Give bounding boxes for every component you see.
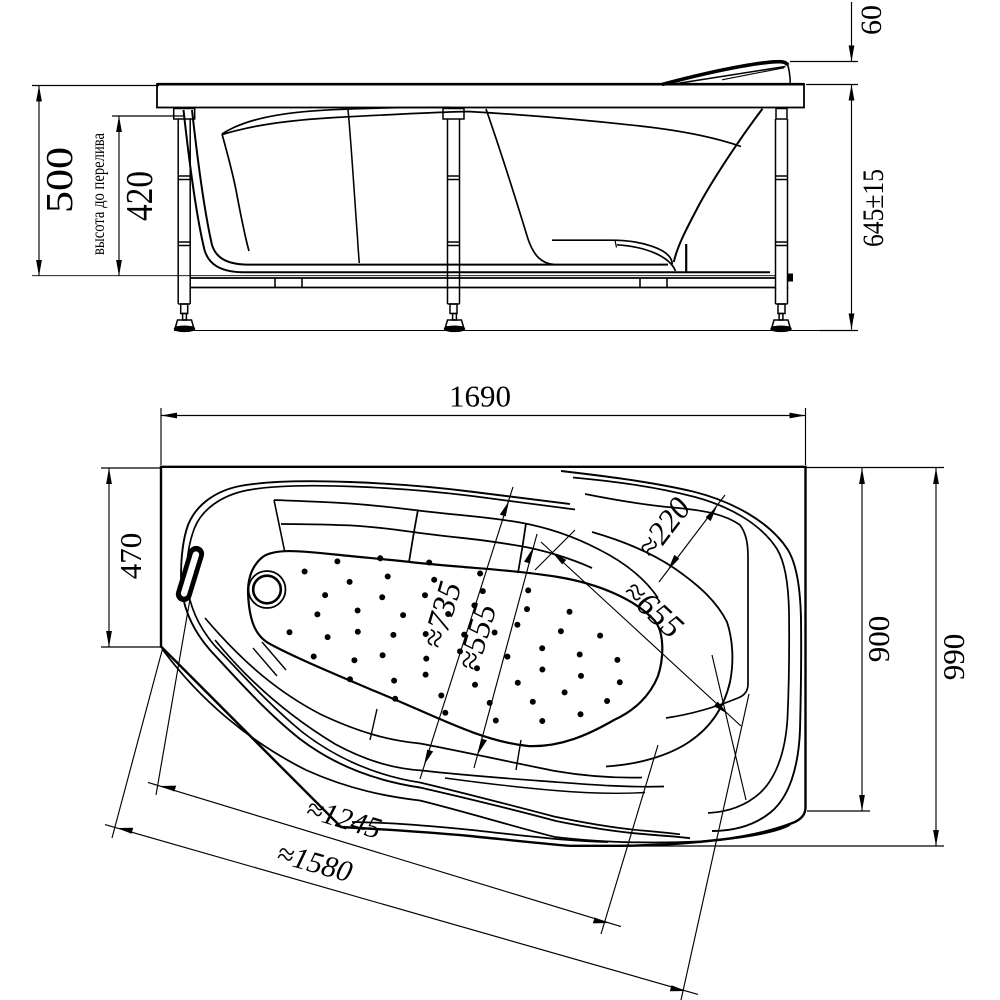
svg-text:1690: 1690 (449, 379, 511, 414)
svg-text:420: 420 (119, 171, 161, 221)
svg-text:470: 470 (113, 533, 148, 580)
svg-text:900: 900 (861, 616, 896, 663)
svg-text:645±15: 645±15 (857, 169, 890, 247)
svg-text:990: 990 (936, 634, 971, 681)
svg-text:60: 60 (855, 5, 888, 35)
svg-text:высота до перелива: высота до перелива (88, 133, 108, 255)
svg-text:500: 500 (39, 147, 81, 213)
